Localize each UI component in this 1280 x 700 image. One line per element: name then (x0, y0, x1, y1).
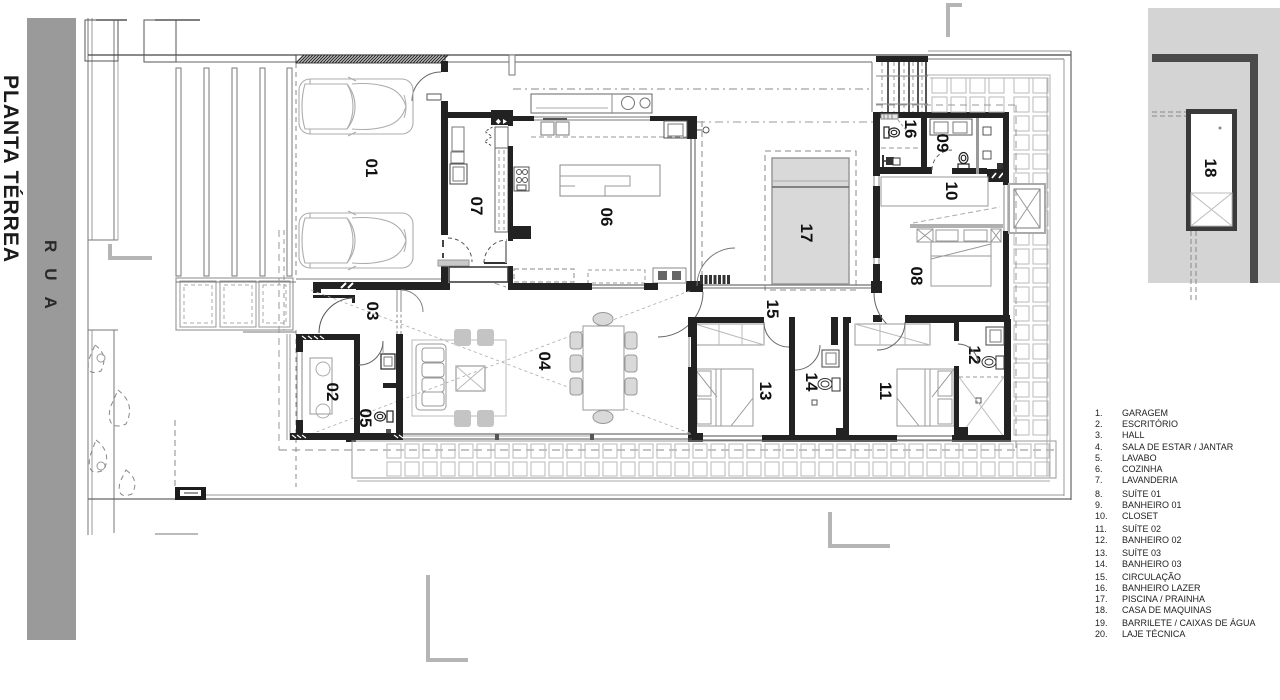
svg-text:20.: 20. (1095, 629, 1108, 639)
svg-text:11.: 11. (1095, 524, 1107, 534)
svg-text:17.: 17. (1095, 594, 1108, 604)
svg-text:BANHEIRO 02: BANHEIRO 02 (1122, 535, 1182, 545)
svg-text:COZINHA: COZINHA (1122, 464, 1163, 474)
svg-text:SALA DE ESTAR / JANTAR: SALA DE ESTAR / JANTAR (1122, 442, 1234, 452)
svg-text:LAVABO: LAVABO (1122, 453, 1157, 463)
svg-text:SUÍTE 03: SUÍTE 03 (1122, 548, 1161, 558)
svg-text:15.: 15. (1095, 572, 1108, 582)
svg-text:CASA DE MAQUINAS: CASA DE MAQUINAS (1122, 605, 1212, 615)
svg-text:SUÍTE 02: SUÍTE 02 (1122, 524, 1161, 534)
svg-text:10.: 10. (1095, 511, 1108, 521)
svg-text:01: 01 (362, 159, 381, 178)
svg-text:RUA: RUA (41, 240, 60, 325)
svg-text:19.: 19. (1095, 618, 1108, 628)
svg-text:07: 07 (467, 197, 486, 216)
svg-text:12: 12 (965, 346, 984, 365)
svg-text:GARAGEM: GARAGEM (1122, 408, 1168, 418)
svg-text:11: 11 (876, 382, 895, 400)
svg-text:04: 04 (535, 352, 554, 371)
svg-text:ESCRITÓRIO: ESCRITÓRIO (1122, 419, 1178, 429)
svg-text:14.: 14. (1095, 559, 1108, 569)
svg-text:6.: 6. (1095, 464, 1103, 474)
svg-text:10: 10 (942, 182, 961, 201)
svg-text:1.: 1. (1095, 408, 1103, 418)
svg-text:LAJE TÉCNICA: LAJE TÉCNICA (1122, 629, 1185, 639)
svg-text:PLANTA TÉRREA: PLANTA TÉRREA (0, 75, 22, 263)
svg-text:HALL: HALL (1122, 430, 1145, 440)
svg-text:14: 14 (802, 373, 821, 392)
svg-text:03: 03 (363, 302, 382, 321)
svg-text:PISCINA / PRAINHA: PISCINA / PRAINHA (1122, 594, 1205, 604)
svg-text:16.: 16. (1095, 583, 1108, 593)
svg-text:LAVANDERIA: LAVANDERIA (1122, 475, 1178, 485)
svg-text:08: 08 (907, 267, 926, 286)
svg-text:09: 09 (933, 134, 952, 153)
svg-text:18.: 18. (1095, 605, 1108, 615)
svg-text:9.: 9. (1095, 500, 1103, 510)
svg-text:BANHEIRO 01: BANHEIRO 01 (1122, 500, 1182, 510)
svg-text:13.: 13. (1095, 548, 1108, 558)
svg-text:BANHEIRO LAZER: BANHEIRO LAZER (1122, 583, 1201, 593)
svg-text:CLOSET: CLOSET (1122, 511, 1159, 521)
svg-text:3.: 3. (1095, 430, 1103, 440)
svg-text:7.: 7. (1095, 475, 1103, 485)
svg-text:8.: 8. (1095, 489, 1103, 499)
svg-text:12.: 12. (1095, 535, 1108, 545)
svg-text:02: 02 (323, 383, 342, 402)
svg-text:18: 18 (1201, 159, 1220, 178)
svg-text:06: 06 (597, 208, 616, 227)
svg-text:CIRCULAÇÃO: CIRCULAÇÃO (1122, 572, 1181, 582)
svg-text:13: 13 (756, 382, 775, 401)
svg-text:16: 16 (901, 120, 920, 139)
svg-text:05: 05 (356, 409, 375, 428)
svg-text:5.: 5. (1095, 453, 1103, 463)
svg-text:4.: 4. (1095, 442, 1103, 452)
svg-text:2.: 2. (1095, 419, 1103, 429)
svg-text:SUÍTE 01: SUÍTE 01 (1122, 489, 1161, 499)
svg-text:15: 15 (763, 300, 782, 319)
svg-text:BANHEIRO 03: BANHEIRO 03 (1122, 559, 1182, 569)
svg-text:BARRILETE / CAIXAS DE ÁGUA: BARRILETE / CAIXAS DE ÁGUA (1122, 618, 1256, 628)
svg-text:17: 17 (797, 224, 816, 243)
